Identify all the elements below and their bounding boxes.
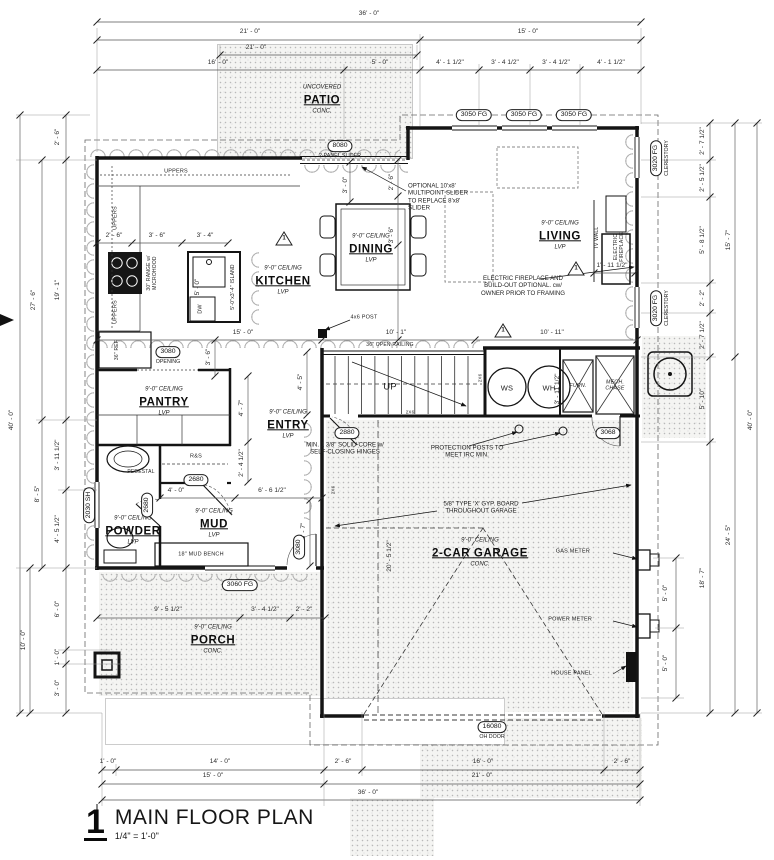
dim-4-0: 4' - 0" [168, 487, 185, 495]
dim-1-11-1-2: 1' - 11 1/2" [597, 262, 628, 270]
dim-16-0: 16' - 0" [208, 59, 228, 67]
dim-4-1-1-2-1: 4' - 1 1/2" [597, 59, 625, 67]
tag-3050-fg: 3050 FG [456, 109, 492, 121]
fixture-pedestal: PEDESTAL [127, 469, 154, 475]
dim-19-1: 19' - 1" [54, 280, 62, 300]
dim-8-5: 8' - 5" [34, 486, 42, 503]
tag-sub-clerestory: CLERESTORY [664, 140, 670, 176]
tag-2880: 2880 [334, 427, 359, 439]
dim-5-8-1-2: 5' - 8 1/2" [699, 226, 707, 254]
room-garage-finish: CONC. [432, 561, 528, 569]
room-patio-finish: CONC. [303, 108, 341, 116]
fixture-36-ref: 36" REF [114, 340, 120, 360]
dim-5-10: 5' - 10" [699, 389, 707, 409]
dim-5-0-2: 5' - 0" [662, 655, 670, 672]
dim-36-0-1: 36' - 0" [358, 789, 378, 797]
dim-16-0-1: 16' - 0" [473, 758, 493, 766]
fixture-18-mud-bench: 18" MUD BENCH [178, 552, 224, 559]
fixture-up: UP [383, 381, 397, 392]
tag-sub-2-panel-slider: 2-PANEL SLIDER [319, 153, 361, 159]
note-5-8-type-x-gyp-board-throughout-garage: 5/8" TYPE 'X' GYP. BOARD THROUGHOUT GARA… [443, 501, 518, 516]
dim-15-7: 15' - 7" [725, 230, 733, 250]
tag-sub-clerestory-1: CLERESTORY [664, 290, 670, 326]
dim-1-0: 1' - 0" [100, 758, 117, 766]
room-kitchen-ceiling: 9'-0" CEILING [255, 265, 310, 273]
dim-4-5: 4' - 5" [297, 374, 305, 391]
room-living-name: LIVING [539, 229, 581, 243]
dim-9-5-1-2: 9' - 5 1/2" [154, 606, 182, 614]
fixture-5-0-x3-4-island: 5'-0"x3'-4" ISLAND [230, 264, 236, 309]
dim-2-6: 2' - 6" [335, 758, 352, 766]
dim-27-6: 27' - 6" [30, 290, 38, 310]
room-porch-ceiling: 9'-0" CEILING [191, 624, 236, 632]
room-patio: UNCOVEREDPATIOCONC. [303, 84, 341, 115]
room-entry-finish: LVP [267, 433, 309, 441]
tag-3020-fg-1: 3020 FG [650, 290, 662, 326]
fixture-wh: WH [543, 384, 556, 393]
room-entry-ceiling: 9'-0" CEILING [267, 409, 309, 417]
fixture-furn: FURN. [569, 383, 586, 389]
note-electric-fireplace-and-build-out-optional-cw-owner-prior-to-framing: ELECTRIC FIREPLACE AND BUILD-OUT OPTIONA… [481, 275, 565, 297]
dim-2-6-1: 2' - 6" [614, 758, 631, 766]
dim-40-0: 40' - 0" [8, 410, 16, 430]
room-porch-name: PORCH [191, 633, 236, 647]
room-entry: 9'-0" CEILINGENTRYLVP [267, 409, 309, 440]
fixture-electric-fireplace: ELECTRIC FIREPLACE [613, 232, 625, 262]
fixture-house-panel: HOUSE PANEL [551, 671, 592, 678]
tag-sub-opening: OPENING [156, 359, 180, 365]
fixture-gas-meter: GAS METER [556, 549, 590, 556]
dim-3-0: 3' - 0" [54, 680, 62, 697]
dim-2-6-2: 2' - 6" [54, 129, 62, 146]
room-powder: 9'-0" CEILINGPOWDERLVP [105, 515, 160, 546]
dim-2-4-1-2: 2' - 4 1/2" [238, 449, 246, 477]
fixture-uppers: UPPERS [164, 169, 188, 176]
fixture-4x6-post: 4x6 POST [351, 315, 378, 322]
tag-3050-fg-1: 3050 FG [506, 109, 542, 121]
dim-3-4-1-2-2: 3' - 4 1/2" [251, 606, 279, 614]
room-dining-finish: LVP [349, 257, 393, 265]
plan-labels: 36' - 0"21' - 0"15' - 0"21' - 0"16' - 0"… [0, 0, 774, 860]
dim-10-0: 10' - 0" [20, 630, 28, 650]
room-garage-name: 2-CAR GARAGE [432, 546, 528, 560]
room-powder-finish: LVP [105, 539, 160, 547]
room-porch-finish: CONC. [191, 648, 236, 656]
room-garage-ceiling: 9'-0" CEILING [432, 537, 528, 545]
tag-3060-fg: 3060 FG [222, 579, 258, 591]
fixture-ws: WS [501, 384, 513, 393]
fixture-uppers-2: UPPERS [113, 300, 120, 324]
dim-1-0-1: 1' - 0" [54, 649, 62, 666]
dim-14-0: 14' - 0" [210, 758, 230, 766]
tag-16080: 16080 [478, 721, 507, 733]
dim-3-0-1: 3' - 0" [342, 177, 350, 194]
dim-3-4: 3' - 4" [197, 232, 214, 240]
dim-21-0-1: 21' - 0" [246, 44, 266, 52]
dim-2-5-1-2: 2' - 5 1/2" [699, 164, 707, 192]
room-kitchen-name: KITCHEN [255, 274, 310, 288]
dim-2-2-1: 2' - 2" [296, 606, 313, 614]
room-living-ceiling: 9'-0" CEILING [539, 220, 581, 228]
dim-6-6-1-2: 6' - 6 1/2" [258, 487, 286, 495]
room-patio-name: PATIO [303, 93, 341, 107]
dim-18-7: 18' - 7" [699, 568, 707, 588]
dim-3-4-1-2-1: 3' - 4 1/2" [542, 59, 570, 67]
fixture-dw: DW [198, 304, 205, 314]
tag-3080: 3080 [155, 346, 180, 358]
dim-40-0-1: 40' - 0" [747, 410, 755, 430]
room-powder-ceiling: 9'-0" CEILING [105, 515, 160, 523]
room-kitchen-finish: LVP [255, 289, 310, 297]
room-kitchen: 9'-0" CEILINGKITCHENLVP [255, 265, 310, 296]
dim-3-4-1-2: 3' - 4 1/2" [491, 59, 519, 67]
dim-15-0: 15' - 0" [518, 28, 538, 36]
tag-3080-1: 3080 [293, 534, 305, 559]
tag-3020-fg: 3020 FG [650, 140, 662, 176]
plan-title: MAIN FLOOR PLAN [115, 806, 314, 830]
room-patio-ceiling: UNCOVERED [303, 84, 341, 92]
plan-number: 1 [84, 806, 107, 841]
tag-2030-sh: 2030 SH [83, 487, 95, 523]
keynote-1: 1 [282, 236, 285, 243]
room-porch: 9'-0" CEILINGPORCHCONC. [191, 624, 236, 655]
keynote-1-1: 1 [574, 266, 577, 273]
dim-10-11: 10' - 11" [540, 329, 564, 337]
tag-sub-oh-door: OH DOOR [479, 734, 504, 740]
fixture-30-range-w-microhood: 30" RANGE w/ MICROHOOD [146, 255, 158, 290]
fixture-uppers-1: UPPERS [113, 206, 120, 230]
dim-36-0: 36' - 0" [359, 10, 379, 18]
dim-3-11-1-2: 3' - 11 1/2" [54, 440, 62, 471]
dim-2-2: 2' - 2" [699, 290, 707, 307]
room-pantry: 9'-0" CEILINGPANTRYLVP [139, 386, 189, 417]
dim-6-0: 6' - 0" [54, 601, 62, 618]
tag-3050-fg-2: 3050 FG [556, 109, 592, 121]
tag-2680: 2680 [183, 474, 208, 486]
dim-2-6-4: 2' - 6" [388, 174, 396, 191]
dim-21-0: 21' - 0" [240, 28, 260, 36]
dim-3-6: 3' - 6" [149, 232, 166, 240]
fixture-2x6-1: 2X6 [330, 486, 335, 495]
dim-2-7-1-2: 2' - 7 1/2" [699, 127, 707, 155]
fixture-36-open-railing: 36" OPEN RAILING [366, 342, 414, 348]
dim-2-6-3: 2' - 6" [106, 232, 123, 240]
note-min-1-3-8-solid-core-w-self-closing-hinges: MIN. 1 3/8" SOLID-CORE w/ SELF-CLOSING H… [306, 442, 384, 457]
dim-20-5-1-2: 20' - 5 1/2" [386, 540, 394, 571]
room-pantry-finish: LVP [139, 410, 189, 418]
room-living-finish: LVP [539, 244, 581, 252]
fixture-power-meter: POWER METER [548, 617, 592, 624]
room-dining: 9'-0" CEILINGDININGLVP [349, 233, 393, 264]
dim-5-0: 5' - 0" [372, 59, 389, 67]
room-mud: 9'-0" CEILINGMUDLVP [195, 508, 233, 539]
room-mud-finish: LVP [195, 532, 233, 540]
room-mud-ceiling: 9'-0" CEILING [195, 508, 233, 516]
room-mud-name: MUD [195, 517, 233, 531]
dim-2-7-1-2-1: 2' - 7 1/2" [699, 321, 707, 349]
dim-4-7: 4' - 7" [238, 400, 246, 417]
dim-4-5-1-2: 4' - 5 1/2" [54, 515, 62, 543]
dim-24-5: 24' - 5" [725, 525, 733, 545]
dim-3-6-1: 3' - 6" [205, 349, 213, 366]
room-garage: 9'-0" CEILING2-CAR GARAGECONC. [432, 537, 528, 568]
note-protection-posts-to-meet-irc-min: PROTECTION POSTS TO MEET IRC MIN. [431, 445, 503, 460]
room-pantry-name: PANTRY [139, 395, 189, 409]
tag-3068: 3068 [595, 427, 620, 439]
fixture-2x6: 2X6 [477, 374, 482, 383]
fixture-mech-chase: MECH. CHASE [605, 380, 624, 393]
dim-4-1-1-2: 4' - 1 1/2" [436, 59, 464, 67]
room-pantry-ceiling: 9'-0" CEILING [139, 386, 189, 394]
keynote-1-2: 1 [501, 328, 504, 335]
room-dining-ceiling: 9'-0" CEILING [349, 233, 393, 241]
fixture-2x6-2: 2X6 [406, 409, 415, 414]
floor-plan-canvas: 36' - 0"21' - 0"15' - 0"21' - 0"16' - 0"… [0, 0, 774, 860]
room-entry-name: ENTRY [267, 418, 309, 432]
dim-5-0-3: 5' - 0" [194, 279, 202, 296]
dim-5-0-1: 5' - 0" [662, 585, 670, 602]
room-living: 9'-0" CEILINGLIVINGLVP [539, 220, 581, 251]
dim-15-0-2: 15' - 0" [233, 329, 253, 337]
tag-2680-1: 2680 [141, 492, 153, 517]
note-optional-10-x8-multipoint-slider-to-replace-8-x8-slider: OPTIONAL 10'x8' MULTIPOINT SLIDER TO REP… [408, 182, 468, 211]
plan-scale: 1/4" = 1'-0" [115, 831, 314, 841]
dim-15-0-1: 15' - 0" [203, 772, 223, 780]
fixture-r-s: R&S [190, 454, 202, 461]
room-dining-name: DINING [349, 242, 393, 256]
room-powder-name: POWDER [105, 524, 160, 538]
dim-21-0-2: 21' - 0" [472, 772, 492, 780]
tag-8080: 8080 [327, 140, 352, 152]
dim-10-1: 10' - 1" [386, 329, 406, 337]
title-block: 1 MAIN FLOOR PLAN 1/4" = 1'-0" [84, 806, 314, 841]
fixture-tv-wall: TV WALL [594, 227, 600, 250]
